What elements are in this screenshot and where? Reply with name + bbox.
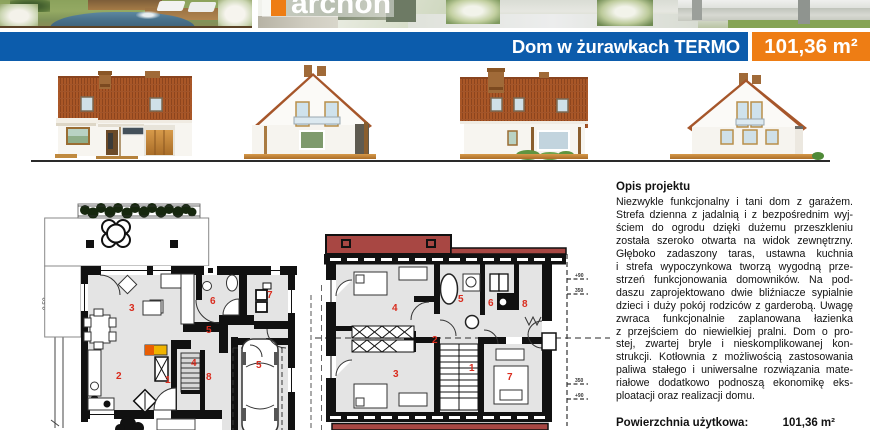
svg-text:350: 350 bbox=[575, 378, 584, 384]
svg-text:5: 5 bbox=[206, 325, 212, 336]
svg-text:7: 7 bbox=[507, 372, 513, 383]
svg-text:8: 8 bbox=[522, 299, 528, 310]
svg-text:1: 1 bbox=[469, 363, 475, 374]
svg-text:5: 5 bbox=[256, 360, 262, 371]
svg-text:6: 6 bbox=[488, 298, 494, 309]
svg-text:3: 3 bbox=[129, 303, 135, 314]
svg-text:4: 4 bbox=[392, 303, 398, 314]
svg-text:+90: +90 bbox=[575, 273, 584, 279]
svg-text:2: 2 bbox=[432, 335, 438, 346]
svg-text:3: 3 bbox=[393, 369, 399, 380]
svg-text:8: 8 bbox=[206, 372, 212, 383]
svg-text:5: 5 bbox=[458, 294, 464, 305]
svg-text:4: 4 bbox=[191, 358, 197, 369]
svg-text:350: 350 bbox=[575, 288, 584, 294]
svg-text:1: 1 bbox=[165, 375, 171, 386]
svg-text:2: 2 bbox=[116, 371, 122, 382]
svg-text:+90: +90 bbox=[575, 393, 584, 399]
svg-text:6: 6 bbox=[210, 296, 216, 307]
svg-text:7: 7 bbox=[267, 290, 273, 301]
